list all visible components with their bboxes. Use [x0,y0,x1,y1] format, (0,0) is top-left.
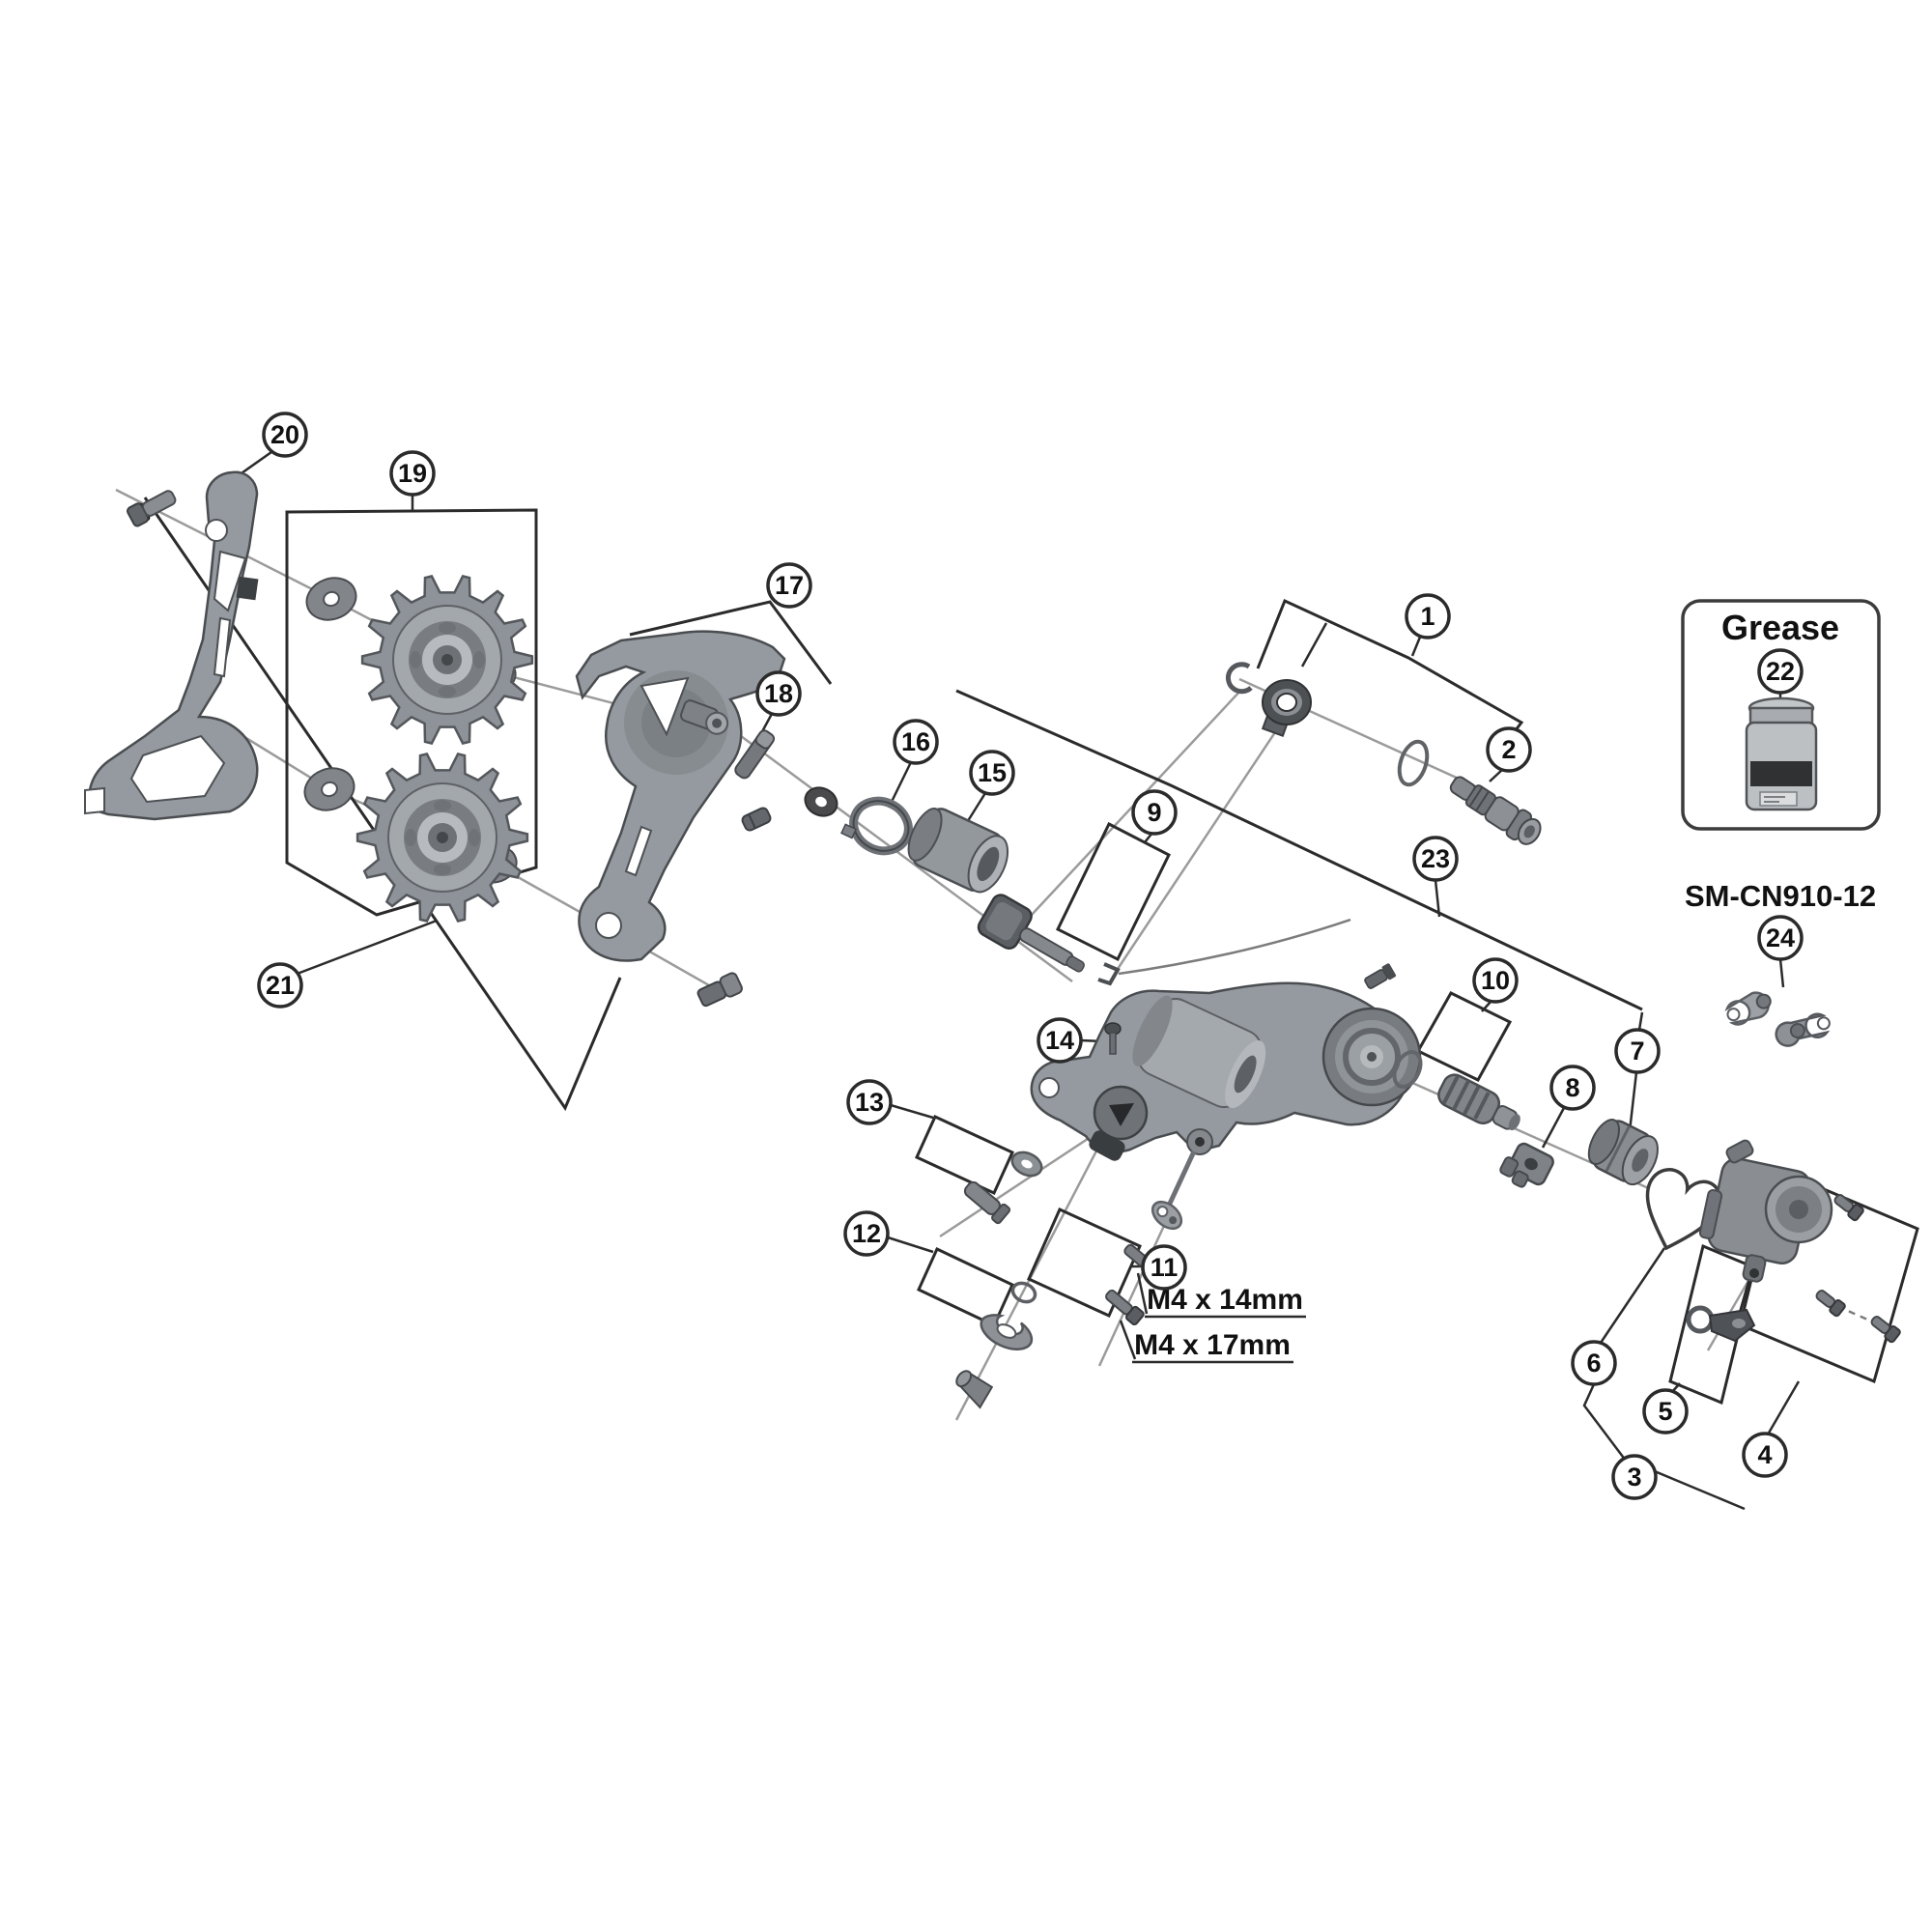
cage-screw-m4x17 [1103,1287,1145,1325]
svg-text:15: 15 [978,758,1007,787]
svg-text:2: 2 [1501,735,1516,764]
screw-spec-m4x17-label: M4 x 17mm [1134,1329,1291,1361]
bracket-13 [891,1105,1012,1193]
callout-15: 15 [971,752,1013,794]
svg-text:4: 4 [1757,1440,1772,1469]
svg-text:9: 9 [1147,798,1161,827]
svg-text:16: 16 [901,727,930,756]
svg-text:13: 13 [855,1088,884,1117]
plate-contact-tab [237,577,259,601]
svg-text:20: 20 [270,420,299,449]
body-boss-head [1323,1009,1420,1105]
callout-5: 5 [1644,1390,1687,1433]
callout-24: 24 [1759,917,1802,959]
body-top-bolt [1363,963,1397,991]
main-body [1032,963,1420,1164]
cable-end-hook [1098,964,1118,983]
cage-link [1148,1197,1186,1235]
grease-box: Grease [1683,601,1879,829]
unit-screw-b [1813,1287,1846,1317]
callout-6: 6 [1573,1342,1615,1384]
svg-text:18: 18 [764,679,793,708]
bracket-10 [1418,993,1510,1080]
callout-3: 3 [1613,1456,1656,1498]
mode-lever-5 [1689,1308,1754,1341]
diagram-canvas: Grease SM-CN910-12 [0,0,1932,1932]
callout-10: 10 [1474,959,1517,1002]
callout-1: 1 [1406,595,1449,638]
svg-text:1: 1 [1420,602,1435,631]
grease-box-title: Grease [1721,608,1839,647]
svg-text:7: 7 [1630,1037,1644,1065]
leader-24 [1780,959,1783,987]
leader-21 [295,921,437,975]
callout-23: 23 [1414,838,1457,880]
callout-19: 19 [391,452,434,495]
callout-20: 20 [264,413,306,456]
callout-4: 4 [1744,1434,1786,1476]
leader-20 [239,452,271,475]
adjust-barrel-10 [1435,1071,1526,1140]
callout-11: 11 [1143,1246,1185,1289]
cable-wire-curve [1119,920,1350,974]
bracket-9 [1058,824,1169,959]
callout-18: 18 [757,672,800,715]
bracket-3-right-arm [1650,1469,1745,1509]
unit-screw-a [1832,1191,1864,1221]
guide-pulley [362,577,532,744]
link-rod [1169,1151,1194,1206]
callout-13: 13 [848,1081,891,1123]
inner-plate-17 [577,632,784,961]
cable-fixing-unit-9 [976,892,1118,986]
callout-2: 2 [1488,728,1530,771]
cable-clamp-8 [1497,1139,1555,1195]
pivot-bolt-outer [127,487,179,527]
plate-washer [801,782,842,821]
callout-16: 16 [895,721,937,763]
exploded-parts-diagram: Grease SM-CN910-12 [0,0,1932,1932]
cage-pivot-bolt [696,972,743,1009]
plate-notch [85,788,104,813]
bracket-12 [888,1237,1012,1325]
svg-text:17: 17 [775,571,804,600]
switch-unit-3 [1699,1139,1832,1283]
outer-plate-20 [85,472,258,819]
callout-9: 9 [1133,791,1176,834]
svg-text:3: 3 [1627,1463,1641,1492]
bushing-15 [900,801,1015,898]
svg-text:6: 6 [1586,1349,1601,1378]
svg-text:11: 11 [1151,1253,1179,1282]
chain-link-model-label: SM-CN910-12 [1685,879,1876,913]
callout-14: 14 [1038,1019,1081,1062]
callout-22: 22 [1759,650,1802,693]
svg-text:10: 10 [1481,966,1510,995]
callout-21: 21 [259,964,301,1007]
svg-text:14: 14 [1045,1026,1074,1055]
leader-8 [1543,1106,1565,1148]
snap-ring-1 [1228,665,1251,692]
callout-12: 12 [845,1212,888,1255]
b-axle-cap-bolt-12 [952,1366,995,1407]
callout-17: 17 [768,564,810,607]
svg-text:23: 23 [1421,844,1450,873]
svg-text:24: 24 [1766,923,1795,952]
callout-7: 7 [1616,1030,1659,1072]
svg-text:5: 5 [1658,1397,1672,1426]
stopper-ring-16 [841,790,917,860]
leader-m4x17 [1121,1321,1135,1359]
stopper-plate-12 [976,1307,1037,1356]
svg-text:12: 12 [852,1219,881,1248]
washer-13 [1009,1148,1045,1179]
pin-bolt-18 [741,807,772,832]
svg-text:21: 21 [266,971,295,1000]
o-ring-2 [1395,738,1433,788]
grease-jar [1747,698,1816,810]
bearing-unit-1 [1263,680,1311,736]
body-left-lug-hole [1039,1078,1059,1097]
svg-text:22: 22 [1766,657,1795,686]
mount-bolt-2 [1445,769,1547,849]
leader-15 [966,793,985,824]
svg-text:19: 19 [398,459,427,488]
quick-link-b [1773,1009,1833,1051]
quick-link-a [1723,988,1775,1028]
tension-pulley [357,754,527,922]
svg-text:8: 8 [1565,1073,1579,1102]
callout-8: 8 [1551,1066,1594,1109]
